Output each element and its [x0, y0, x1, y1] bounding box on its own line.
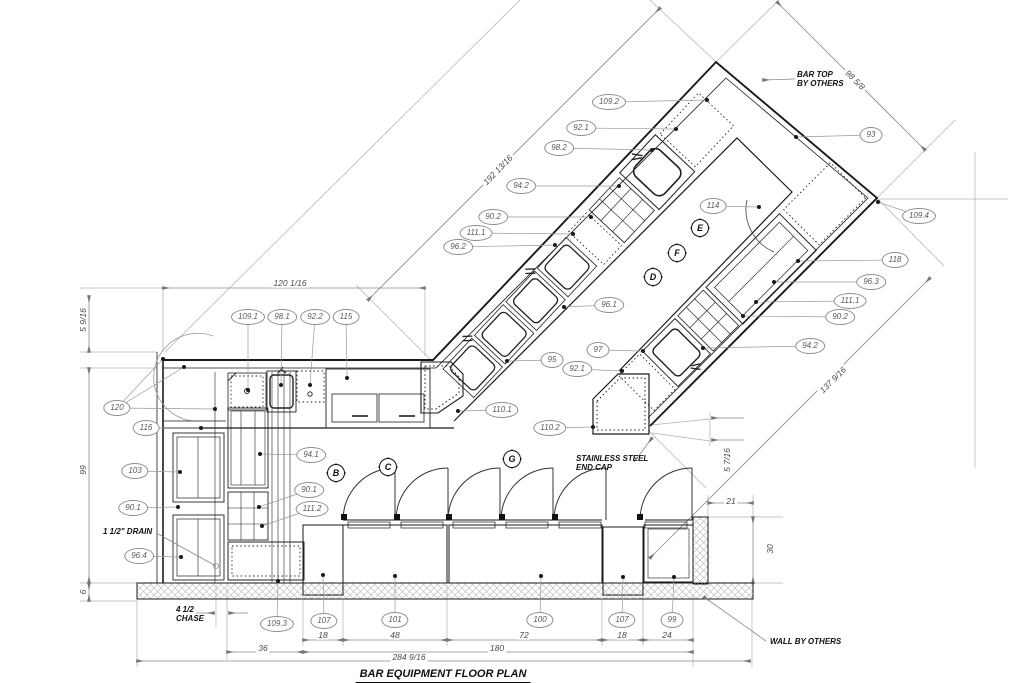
dimension-label: 18 [615, 631, 628, 640]
backbar-cabinet-115 [326, 369, 430, 428]
callout-balloon-111.1: 111.1 [460, 225, 493, 241]
drawing-title: BAR EQUIPMENT FLOOR PLAN [356, 668, 531, 683]
callout-balloon-90.2: 90.2 [825, 309, 855, 325]
callout-balloon-99: 99 [661, 612, 684, 628]
callout-balloon-97: 97 [587, 342, 610, 358]
dimension-label: 36 [256, 644, 269, 653]
floor-cabinets [303, 468, 693, 595]
marker-letter: C [379, 458, 397, 476]
callout-balloon-96.2: 96.2 [443, 239, 473, 255]
dimension-label: 5 9/16 [79, 306, 88, 334]
section-marker-G: G [501, 448, 523, 470]
callout-balloon-94.2: 94.2 [506, 178, 536, 194]
corner-piece-110-1 [421, 362, 463, 413]
marker-letter: F [668, 244, 686, 262]
equipment [173, 88, 869, 583]
callout-balloon-92.2: 92.2 [300, 309, 330, 325]
cabinet-100 [449, 525, 602, 583]
dimension-label: 24 [660, 631, 673, 640]
glass-rack-111-2 [228, 492, 268, 540]
callout-balloon-98.1: 98.1 [267, 309, 297, 325]
floor-plan-drawing [0, 0, 1024, 683]
section-marker-C: C [377, 456, 399, 478]
callout-balloon-90.1: 90.1 [118, 500, 148, 516]
floor-plan-page: 109.292.198.294.290.2111.196.293109.4118… [0, 0, 1024, 683]
bar-top-note: BAR TOP BY OTHERS [797, 70, 844, 89]
dimension-label: 180 [488, 644, 506, 653]
callout-balloon-111.1: 111.1 [834, 293, 867, 309]
dimension-label: 284 9/16 [390, 653, 427, 662]
dimension-label: 48 [388, 631, 401, 640]
callout-balloon-118: 118 [882, 252, 909, 268]
callout-balloon-109.3: 109.3 [260, 616, 294, 632]
callout-balloon-109.1: 109.1 [231, 309, 265, 325]
sink-98-1 [267, 371, 296, 412]
drain-note: 1 1/2" DRAIN [103, 527, 152, 536]
dimension-label: 18 [316, 631, 329, 640]
callout-balloon-116: 116 [133, 420, 160, 436]
dimension-label: 120 1/16 [271, 279, 308, 288]
cabinet-99 [644, 525, 693, 582]
callout-balloon-96.1: 96.1 [594, 297, 624, 313]
section-marker-E: E [689, 217, 711, 239]
section-marker-D: D [642, 266, 664, 288]
unit-94-1 [228, 408, 268, 488]
callout-balloon-114: 114 [700, 198, 727, 214]
dimension-label: 99 [79, 463, 88, 476]
end-cap-note: STAINLESS STEEL END CAP [576, 454, 648, 473]
dimension-label: 72 [517, 631, 530, 640]
callout-balloon-109.2: 109.2 [592, 94, 626, 110]
callout-balloon-96.4: 96.4 [124, 548, 154, 564]
dimension-label: 21 [724, 497, 737, 506]
dimension-label: 30 [766, 542, 775, 555]
callout-balloon-92.1: 92.1 [562, 361, 592, 377]
marker-letter: D [644, 268, 662, 286]
construction-lines [80, 0, 1008, 667]
end-cap-piece-110-2 [593, 374, 649, 434]
section-marker-F: F [666, 242, 688, 264]
section-marker-B: B [325, 462, 347, 484]
callout-balloon-90.1: 90.1 [294, 482, 324, 498]
marker-letter: B [327, 464, 345, 482]
callout-balloon-93: 93 [860, 127, 883, 143]
callout-balloon-94.1: 94.1 [296, 447, 326, 463]
callout-balloon-109.4: 109.4 [902, 208, 936, 224]
chase-note: 4 1/2 CHASE [176, 605, 204, 624]
unit-103 [173, 433, 224, 502]
callout-balloon-95: 95 [541, 352, 564, 368]
callout-balloon-115: 115 [333, 309, 360, 325]
callout-balloon-92.1: 92.1 [566, 120, 596, 136]
unit-96-4 [173, 515, 224, 580]
dimension-label: 6 [79, 588, 88, 597]
door-hinge-marks [341, 514, 643, 520]
dimension-label: 5 7/16 [723, 446, 732, 474]
callout-balloon-96.3: 96.3 [856, 274, 886, 290]
callout-balloon-111.2: 111.2 [296, 501, 329, 517]
marker-letter: G [503, 450, 521, 468]
callout-balloon-90.2: 90.2 [478, 209, 508, 225]
wall-note: WALL BY OTHERS [770, 637, 841, 646]
callout-balloon-94.2: 94.2 [795, 338, 825, 354]
marker-letter: E [691, 219, 709, 237]
drainboard-109-3 [228, 542, 304, 580]
callout-balloon-98.2: 98.2 [544, 140, 574, 156]
